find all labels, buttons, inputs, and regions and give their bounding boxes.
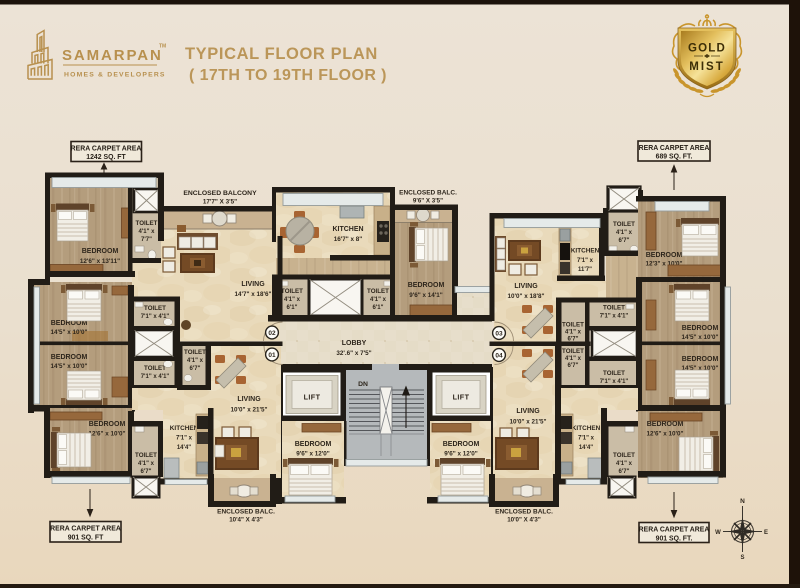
svg-text:14'7" x 18'6": 14'7" x 18'6": [235, 291, 272, 298]
svg-text:TOILET: TOILET: [144, 365, 166, 372]
svg-text:LIVING: LIVING: [514, 283, 538, 290]
svg-text:TOILET: TOILET: [367, 288, 389, 295]
svg-text:14'5" x 10'0": 14'5" x 10'0": [51, 329, 88, 336]
svg-text:01: 01: [268, 352, 276, 359]
svg-text:14'5" x 10'0": 14'5" x 10'0": [682, 334, 719, 341]
svg-text:6'7": 6'7": [190, 366, 201, 372]
svg-text:10'0" X 4'3": 10'0" X 4'3": [507, 517, 541, 524]
svg-text:14'4": 14'4": [177, 445, 191, 451]
svg-text:7'1" x: 7'1" x: [578, 436, 595, 442]
svg-text:RERA CARPET AREA: RERA CARPET AREA: [50, 526, 121, 533]
svg-text:KITCHEN: KITCHEN: [572, 425, 601, 432]
svg-text:ENCLOSED BALC.: ENCLOSED BALC.: [217, 509, 275, 516]
svg-text:LIVING: LIVING: [241, 281, 265, 288]
svg-text:689 SQ. FT.: 689 SQ. FT.: [656, 154, 693, 161]
svg-text:DN: DN: [358, 381, 368, 388]
svg-text:ENCLOSED BALC.: ENCLOSED BALC.: [495, 509, 553, 516]
svg-text:BEDROOM: BEDROOM: [647, 421, 684, 428]
svg-text:6'7": 6'7": [619, 238, 630, 244]
svg-text:4'1" x: 4'1" x: [187, 358, 204, 364]
svg-text:4'1" x: 4'1" x: [616, 461, 633, 467]
svg-text:14'5" x 10'0": 14'5" x 10'0": [51, 363, 88, 370]
svg-text:7'7": 7'7": [141, 237, 152, 243]
svg-text:RERA CARPET AREA: RERA CARPET AREA: [639, 527, 710, 534]
svg-text:W: W: [715, 530, 721, 536]
svg-text:4'1" x: 4'1" x: [565, 356, 582, 362]
svg-text:7'1" x: 7'1" x: [176, 436, 193, 442]
svg-text:N: N: [740, 498, 745, 505]
svg-text:901 SQ. FT.: 901 SQ. FT.: [656, 536, 693, 543]
svg-text:ENCLOSED BALCONY: ENCLOSED BALCONY: [183, 190, 257, 197]
svg-text:7'1" x: 7'1" x: [577, 258, 594, 264]
svg-text:16'7" x 8": 16'7" x 8": [334, 236, 362, 243]
svg-text:7'1" x 4'1": 7'1" x 4'1": [141, 374, 170, 380]
svg-text:KITCHEN: KITCHEN: [571, 248, 600, 255]
svg-text:SAMARPAN: SAMARPAN: [62, 47, 163, 64]
svg-text:TOILET: TOILET: [281, 288, 303, 295]
svg-text:4'1" x: 4'1" x: [616, 230, 633, 236]
svg-text:6'1": 6'1": [373, 305, 384, 311]
svg-text:BEDROOM: BEDROOM: [51, 354, 88, 361]
svg-text:KITCHEN: KITCHEN: [170, 425, 199, 432]
svg-text:BEDROOM: BEDROOM: [408, 282, 445, 289]
svg-text:TOILET: TOILET: [613, 452, 635, 459]
svg-text:4'1" x: 4'1" x: [284, 297, 301, 303]
svg-text:TOILET: TOILET: [603, 370, 625, 377]
svg-text:( 17TH TO 19TH FLOOR ): ( 17TH TO 19TH FLOOR ): [189, 67, 387, 84]
svg-text:1242 SQ. FT: 1242 SQ. FT: [86, 154, 126, 161]
svg-text:12'6" x 10'0": 12'6" x 10'0": [647, 431, 684, 438]
svg-text:TOILET: TOILET: [136, 220, 158, 227]
svg-text:4'1" x: 4'1" x: [138, 461, 155, 467]
svg-text:BEDROOM: BEDROOM: [82, 248, 119, 255]
svg-text:10'0" x 21'5": 10'0" x 21'5": [231, 407, 268, 414]
svg-text:LIVING: LIVING: [237, 396, 261, 403]
svg-text:14'4": 14'4": [579, 445, 593, 451]
svg-text:11'7": 11'7": [578, 267, 592, 273]
svg-text:32'.6" x 7'5": 32'.6" x 7'5": [336, 350, 371, 357]
svg-text:TYPICAL FLOOR PLAN: TYPICAL FLOOR PLAN: [185, 45, 378, 63]
svg-text:901 SQ. FT: 901 SQ. FT: [68, 535, 104, 542]
svg-text:9'6" X 3'5": 9'6" X 3'5": [413, 198, 443, 205]
svg-text:ENCLOSED BALC.: ENCLOSED BALC.: [399, 190, 457, 197]
svg-text:10'4" X 4'3": 10'4" X 4'3": [229, 517, 263, 524]
svg-text:6'7": 6'7": [568, 363, 579, 369]
svg-text:TOILET: TOILET: [184, 349, 206, 356]
svg-text:17'7" X 3'5": 17'7" X 3'5": [203, 199, 237, 206]
svg-text:HOMES & DEVELOPERS: HOMES & DEVELOPERS: [64, 72, 166, 79]
svg-text:BEDROOM: BEDROOM: [295, 441, 332, 448]
svg-text:KITCHEN: KITCHEN: [332, 226, 363, 233]
svg-text:BEDROOM: BEDROOM: [443, 441, 480, 448]
svg-text:TOILET: TOILET: [562, 322, 584, 329]
svg-text:6'7": 6'7": [619, 469, 630, 475]
svg-text:BEDROOM: BEDROOM: [682, 356, 719, 363]
svg-text:BEDROOM: BEDROOM: [89, 421, 126, 428]
svg-text:03: 03: [495, 331, 503, 338]
svg-text:TOILET: TOILET: [603, 305, 625, 312]
svg-text:12'6" x 10'0": 12'6" x 10'0": [89, 431, 126, 438]
svg-text:TOILET: TOILET: [135, 452, 157, 459]
svg-text:BEDROOM: BEDROOM: [646, 252, 683, 259]
svg-text:6'1": 6'1": [287, 305, 298, 311]
svg-text:MIST: MIST: [689, 61, 724, 73]
svg-text:RERA CARPET AREA: RERA CARPET AREA: [639, 145, 710, 152]
svg-text:4'1" x: 4'1" x: [139, 229, 156, 235]
svg-text:10'0" x 18'8": 10'0" x 18'8": [508, 293, 545, 300]
svg-text:6'7": 6'7": [141, 469, 152, 475]
svg-text:TOILET: TOILET: [613, 221, 635, 228]
svg-text:E: E: [764, 530, 768, 536]
svg-text:LIFT: LIFT: [453, 393, 470, 402]
svg-text:GOLD: GOLD: [688, 43, 726, 55]
svg-text:RERA CARPET AREA: RERA CARPET AREA: [71, 146, 142, 153]
svg-text:04: 04: [495, 353, 503, 360]
svg-text:12'6" x 13'11": 12'6" x 13'11": [80, 258, 120, 265]
svg-text:9'6" x 12'0": 9'6" x 12'0": [296, 451, 329, 458]
svg-text:4'1" x: 4'1" x: [370, 297, 387, 303]
svg-text:LIVING: LIVING: [516, 408, 540, 415]
svg-text:LOBBY: LOBBY: [342, 340, 367, 347]
svg-text:10'0" x 21'5": 10'0" x 21'5": [510, 419, 547, 426]
svg-text:LIFT: LIFT: [304, 393, 321, 402]
svg-text:BEDROOM: BEDROOM: [682, 325, 719, 332]
svg-text:02: 02: [268, 330, 276, 337]
svg-text:TM: TM: [159, 44, 166, 50]
svg-text:S: S: [740, 555, 744, 561]
svg-text:7'1" x 4'1": 7'1" x 4'1": [600, 314, 629, 320]
svg-text:9'6" x 12'0": 9'6" x 12'0": [444, 451, 477, 458]
svg-text:7'1" x 4'1": 7'1" x 4'1": [600, 379, 629, 385]
svg-text:9'6" x 14'1": 9'6" x 14'1": [409, 292, 442, 299]
svg-text:4'1" x: 4'1" x: [565, 330, 582, 336]
svg-text:TOILET: TOILET: [144, 305, 166, 312]
svg-text:TOILET: TOILET: [562, 348, 584, 355]
